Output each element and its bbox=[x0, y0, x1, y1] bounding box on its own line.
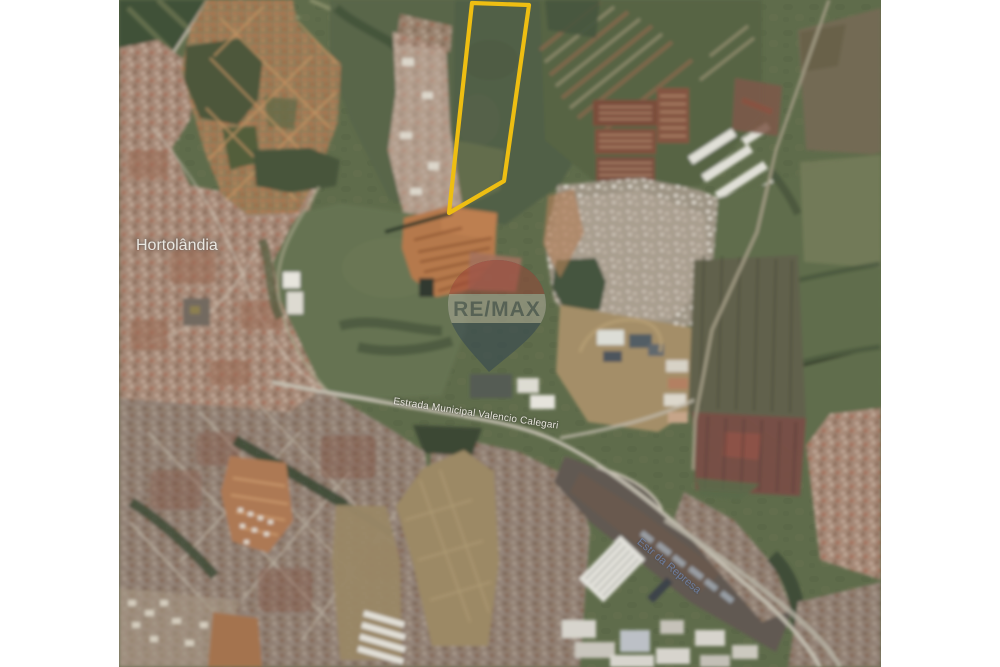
svg-text:RE/MAX: RE/MAX bbox=[453, 298, 541, 321]
svg-text:Hortolândia: Hortolândia bbox=[136, 237, 218, 254]
